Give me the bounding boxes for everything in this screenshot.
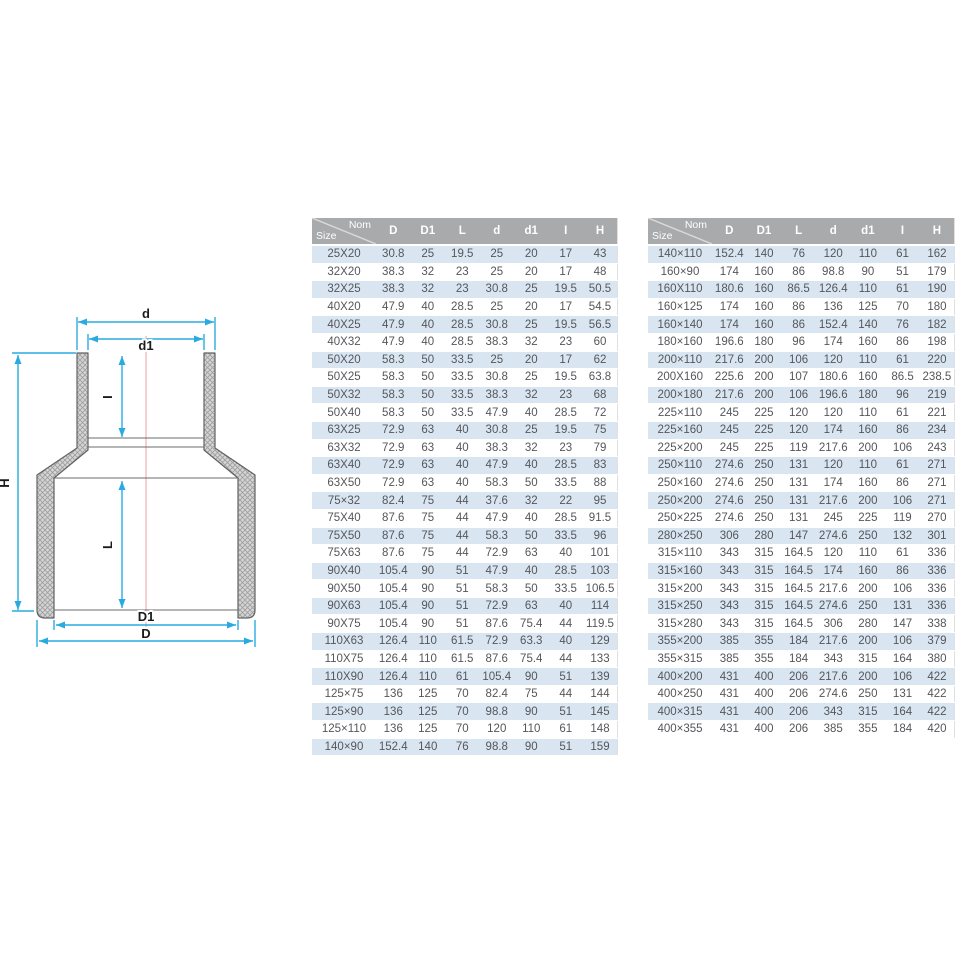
value-cell-I: 33.5 [549, 474, 584, 492]
value-cell-d1: 20 [514, 298, 549, 316]
value-cell-H: 159 [583, 738, 618, 756]
value-cell-H: 103 [583, 562, 618, 580]
size-cell: 200×110 [648, 351, 712, 369]
nom-header-label: Nom [685, 219, 707, 231]
value-cell-I: 19.5 [549, 281, 584, 299]
value-cell-L: 51 [445, 580, 480, 598]
value-cell-d1: 110 [851, 457, 886, 475]
size-cell: 250×225 [648, 509, 712, 527]
value-cell-H: 101 [583, 545, 618, 563]
value-cell-L: 184 [781, 633, 816, 651]
value-cell-d: 217.6 [816, 580, 851, 598]
table-row: 160X110180.616086.5126.411061190 [648, 281, 955, 299]
value-cell-D: 274.6 [712, 492, 747, 510]
value-cell-I: 70 [885, 298, 920, 316]
value-cell-L: 106 [781, 386, 816, 404]
value-cell-L: 164.5 [781, 580, 816, 598]
value-cell-D: 58.3 [376, 386, 411, 404]
table-row: 125×1101361257012011061148 [312, 721, 618, 739]
value-cell-H: 271 [920, 474, 955, 492]
value-cell-H: 379 [920, 633, 955, 651]
table-row: 400×200431400206217.6200106422 [648, 668, 955, 686]
label-l: L [100, 541, 115, 549]
table-row: 140×90152.41407698.89051159 [312, 738, 618, 756]
value-cell-D1: 50 [411, 386, 446, 404]
value-cell-D: 274.6 [712, 457, 747, 475]
size-cell: 315×200 [648, 580, 712, 598]
value-cell-L: 70 [445, 685, 480, 703]
value-cell-D: 38.3 [376, 281, 411, 299]
label-d1: d1 [138, 338, 153, 353]
value-cell-I: 86 [885, 562, 920, 580]
value-cell-d: 120 [816, 545, 851, 563]
value-cell-D: 343 [712, 580, 747, 598]
value-cell-L: 28.5 [445, 316, 480, 334]
value-cell-d1: 40 [514, 457, 549, 475]
column-header-I: I [549, 218, 584, 245]
value-cell-d: 196.6 [816, 386, 851, 404]
value-cell-D: 343 [712, 615, 747, 633]
size-cell: 400×250 [648, 685, 712, 703]
size-cell: 50X40 [312, 404, 376, 422]
value-cell-H: 219 [920, 386, 955, 404]
value-cell-L: 86 [781, 316, 816, 334]
value-cell-d1: 75.4 [514, 615, 549, 633]
value-cell-d: 217.6 [816, 668, 851, 686]
size-cell: 75×32 [312, 492, 376, 510]
table-row: 225×200245225119217.6200106243 [648, 439, 955, 457]
value-cell-D: 105.4 [376, 615, 411, 633]
value-cell-I: 61 [885, 351, 920, 369]
value-cell-H: 50.5 [583, 281, 618, 299]
value-cell-D: 343 [712, 562, 747, 580]
value-cell-L: 33.5 [445, 351, 480, 369]
value-cell-L: 131 [781, 457, 816, 475]
table-row: 200×180217.6200106196.618096219 [648, 386, 955, 404]
value-cell-L: 131 [781, 492, 816, 510]
value-cell-D: 82.4 [376, 492, 411, 510]
table-row: 50X2558.35033.530.82519.563.8 [312, 369, 618, 387]
value-cell-d: 120 [480, 721, 515, 739]
value-cell-L: 33.5 [445, 369, 480, 387]
value-cell-L: 131 [781, 509, 816, 527]
value-cell-D1: 75 [411, 492, 446, 510]
value-cell-H: 63.8 [583, 369, 618, 387]
value-cell-I: 44 [549, 650, 584, 668]
value-cell-I: 28.5 [549, 457, 584, 475]
value-cell-H: 220 [920, 351, 955, 369]
value-cell-H: 62 [583, 351, 618, 369]
table-row: 125×751361257082.47544144 [312, 685, 618, 703]
size-cell: 110X63 [312, 633, 376, 651]
value-cell-d1: 160 [851, 474, 886, 492]
value-cell-I: 106 [885, 580, 920, 598]
value-cell-H: 336 [920, 580, 955, 598]
value-cell-D1: 200 [747, 351, 782, 369]
value-cell-D1: 140 [747, 245, 782, 263]
table-row: 110X63126.411061.572.963.340129 [312, 633, 618, 651]
value-cell-L: 44 [445, 527, 480, 545]
value-cell-D1: 50 [411, 404, 446, 422]
value-cell-I: 40 [549, 633, 584, 651]
table-row: 50X4058.35033.547.94028.572 [312, 404, 618, 422]
size-cell: 225×160 [648, 421, 712, 439]
value-cell-D1: 200 [747, 386, 782, 404]
value-cell-I: 164 [885, 650, 920, 668]
value-cell-D1: 90 [411, 615, 446, 633]
table-row: 110X75126.411061.587.675.444133 [312, 650, 618, 668]
value-cell-d1: 25 [514, 421, 549, 439]
table-row: 90X50105.4905158.35033.5106.5 [312, 580, 618, 598]
size-cell: 50X32 [312, 386, 376, 404]
value-cell-d1: 90 [514, 668, 549, 686]
value-cell-H: 68 [583, 386, 618, 404]
value-cell-D: 126.4 [376, 650, 411, 668]
value-cell-D: 72.9 [376, 474, 411, 492]
column-header-D: D [712, 218, 747, 245]
size-cell: 400×200 [648, 668, 712, 686]
value-cell-d1: 32 [514, 333, 549, 351]
value-cell-d: 120 [816, 351, 851, 369]
value-cell-d: 174 [816, 421, 851, 439]
size-cell: 200X160 [648, 369, 712, 387]
value-cell-D1: 225 [747, 421, 782, 439]
value-cell-I: 131 [885, 685, 920, 703]
value-cell-D: 196.6 [712, 333, 747, 351]
table-row: 355×200385355184217.6200106379 [648, 633, 955, 651]
value-cell-D: 87.6 [376, 527, 411, 545]
value-cell-D: 126.4 [376, 633, 411, 651]
value-cell-D1: 400 [747, 668, 782, 686]
value-cell-d: 105.4 [480, 668, 515, 686]
value-cell-d1: 225 [851, 509, 886, 527]
value-cell-D: 152.4 [376, 738, 411, 756]
value-cell-I: 17 [549, 298, 584, 316]
value-cell-d: 120 [816, 457, 851, 475]
value-cell-D1: 75 [411, 509, 446, 527]
value-cell-I: 51 [549, 738, 584, 756]
value-cell-D: 47.9 [376, 316, 411, 334]
value-cell-D: 431 [712, 668, 747, 686]
size-cell: 32X25 [312, 281, 376, 299]
table-row: 400×355431400206385355184420 [648, 721, 955, 739]
table-row: 75X4087.6754447.94028.591.5 [312, 509, 618, 527]
value-cell-d1: 20 [514, 263, 549, 281]
size-cell: 90X75 [312, 615, 376, 633]
value-cell-D: 217.6 [712, 351, 747, 369]
value-cell-L: 51 [445, 597, 480, 615]
value-cell-d: 245 [816, 509, 851, 527]
table-row: 315×200343315164.5217.6200106336 [648, 580, 955, 598]
value-cell-I: 17 [549, 351, 584, 369]
value-cell-L: 61.5 [445, 650, 480, 668]
value-cell-d: 38.3 [480, 439, 515, 457]
value-cell-L: 120 [781, 421, 816, 439]
size-cell: 75X63 [312, 545, 376, 563]
value-cell-d: 174 [816, 474, 851, 492]
size-cell: 280×250 [648, 527, 712, 545]
value-cell-I: 184 [885, 721, 920, 739]
size-cell: 40X20 [312, 298, 376, 316]
size-cell: 63X50 [312, 474, 376, 492]
value-cell-H: 95 [583, 492, 618, 510]
value-cell-d: 274.6 [816, 685, 851, 703]
value-cell-H: 148 [583, 721, 618, 739]
value-cell-d1: 90 [514, 738, 549, 756]
value-cell-d: 274.6 [816, 527, 851, 545]
value-cell-H: 422 [920, 668, 955, 686]
value-cell-H: 54.5 [583, 298, 618, 316]
value-cell-H: 221 [920, 404, 955, 422]
value-cell-D1: 315 [747, 597, 782, 615]
value-cell-L: 206 [781, 668, 816, 686]
value-cell-D1: 90 [411, 562, 446, 580]
size-cell: 400×355 [648, 721, 712, 739]
value-cell-d: 47.9 [480, 457, 515, 475]
value-cell-H: 145 [583, 703, 618, 721]
value-cell-d1: 110 [851, 281, 886, 299]
value-cell-H: 60 [583, 333, 618, 351]
value-cell-D1: 75 [411, 545, 446, 563]
dimension-table-left: NomSizeDD1Ldd1IH 25X2030.82519.525201743… [312, 218, 618, 756]
value-cell-D1: 90 [411, 580, 446, 598]
value-cell-d1: 250 [851, 527, 886, 545]
value-cell-D1: 250 [747, 457, 782, 475]
value-cell-H: 422 [920, 703, 955, 721]
table-row: 355×315385355184343315164380 [648, 650, 955, 668]
value-cell-L: 70 [445, 703, 480, 721]
value-cell-d: 120 [816, 245, 851, 263]
value-cell-I: 131 [885, 597, 920, 615]
table-row: 32X2538.3322330.82519.550.5 [312, 281, 618, 299]
value-cell-D1: 40 [411, 298, 446, 316]
value-cell-d1: 75 [514, 685, 549, 703]
size-cell: 315×160 [648, 562, 712, 580]
value-cell-D: 152.4 [712, 245, 747, 263]
value-cell-D: 245 [712, 421, 747, 439]
value-cell-D1: 25 [411, 245, 446, 263]
table-row: 110X90126.411061105.49051139 [312, 668, 618, 686]
value-cell-H: 270 [920, 509, 955, 527]
value-cell-D1: 160 [747, 281, 782, 299]
value-cell-D: 343 [712, 597, 747, 615]
value-cell-d: 343 [816, 703, 851, 721]
value-cell-D: 58.3 [376, 351, 411, 369]
value-cell-H: 336 [920, 597, 955, 615]
value-cell-L: 44 [445, 492, 480, 510]
table-row: 75×3282.4754437.6322295 [312, 492, 618, 510]
value-cell-d1: 250 [851, 685, 886, 703]
value-cell-I: 106 [885, 492, 920, 510]
size-cell: 110X90 [312, 668, 376, 686]
value-cell-H: 75 [583, 421, 618, 439]
table-row: 315×250343315164.5274.6250131336 [648, 597, 955, 615]
value-cell-d1: 160 [851, 562, 886, 580]
value-cell-L: 86 [781, 263, 816, 281]
table-row: 125×901361257098.89051145 [312, 703, 618, 721]
value-cell-D1: 50 [411, 369, 446, 387]
size-cell: 63X32 [312, 439, 376, 457]
size-header-label: Size [652, 230, 672, 242]
value-cell-d1: 110 [514, 721, 549, 739]
column-header-d1: d1 [851, 218, 886, 245]
value-cell-H: 43 [583, 245, 618, 263]
value-cell-L: 70 [445, 721, 480, 739]
size-cell: 160×90 [648, 263, 712, 281]
value-cell-D1: 63 [411, 474, 446, 492]
table-row: 63X2572.9634030.82519.575 [312, 421, 618, 439]
table-row: 315×280343315164.5306280147338 [648, 615, 955, 633]
value-cell-D: 225.6 [712, 369, 747, 387]
value-cell-H: 301 [920, 527, 955, 545]
value-cell-I: 33.5 [549, 580, 584, 598]
size-cell: 40X32 [312, 333, 376, 351]
value-cell-D1: 180 [747, 333, 782, 351]
size-cell: 90X50 [312, 580, 376, 598]
value-cell-D1: 140 [411, 738, 446, 756]
value-cell-D: 217.6 [712, 386, 747, 404]
value-cell-D: 274.6 [712, 509, 747, 527]
value-cell-I: 106 [885, 633, 920, 651]
value-cell-d1: 110 [851, 545, 886, 563]
value-cell-D: 47.9 [376, 298, 411, 316]
value-cell-L: 51 [445, 615, 480, 633]
size-cell: 315×250 [648, 597, 712, 615]
value-cell-D1: 32 [411, 281, 446, 299]
value-cell-d1: 63 [514, 597, 549, 615]
value-cell-D: 245 [712, 439, 747, 457]
table-row: 160×1251741608613612570180 [648, 298, 955, 316]
value-cell-I: 51 [885, 263, 920, 281]
value-cell-I: 28.5 [549, 509, 584, 527]
reducer-cross-section-diagram: d d1 I L H D1 D [0, 300, 300, 670]
value-cell-D1: 50 [411, 351, 446, 369]
table-row: 40X2047.94028.525201754.5 [312, 298, 618, 316]
value-cell-d1: 40 [514, 509, 549, 527]
value-cell-d1: 50 [514, 580, 549, 598]
value-cell-d1: 200 [851, 668, 886, 686]
value-cell-d: 47.9 [480, 509, 515, 527]
value-cell-L: 40 [445, 421, 480, 439]
value-cell-D1: 125 [411, 703, 446, 721]
value-cell-D: 431 [712, 721, 747, 739]
column-header-H: H [920, 218, 955, 245]
value-cell-D: 105.4 [376, 580, 411, 598]
value-cell-D: 30.8 [376, 245, 411, 263]
value-cell-D1: 63 [411, 457, 446, 475]
value-cell-d1: 110 [851, 245, 886, 263]
table-row: 315×110343315164.512011061336 [648, 545, 955, 563]
value-cell-I: 61 [885, 245, 920, 263]
value-cell-L: 44 [445, 545, 480, 563]
value-cell-D1: 225 [747, 404, 782, 422]
value-cell-D: 385 [712, 650, 747, 668]
value-cell-D1: 63 [411, 439, 446, 457]
value-cell-d: 25 [480, 245, 515, 263]
table-row: 140×110152.41407612011061162 [648, 245, 955, 263]
value-cell-I: 96 [885, 386, 920, 404]
value-cell-I: 22 [549, 492, 584, 510]
value-cell-H: 380 [920, 650, 955, 668]
value-cell-D1: 63 [411, 421, 446, 439]
value-cell-H: 162 [920, 245, 955, 263]
size-cell: 250×160 [648, 474, 712, 492]
size-cell: 90X40 [312, 562, 376, 580]
value-cell-D: 58.3 [376, 369, 411, 387]
value-cell-D1: 160 [747, 316, 782, 334]
size-cell: 140×90 [312, 738, 376, 756]
value-cell-d1: 63.3 [514, 633, 549, 651]
value-cell-d1: 63 [514, 545, 549, 563]
value-cell-D: 87.6 [376, 545, 411, 563]
value-cell-H: 129 [583, 633, 618, 651]
value-cell-D1: 315 [747, 580, 782, 598]
value-cell-D: 105.4 [376, 597, 411, 615]
value-cell-d1: 32 [514, 439, 549, 457]
value-cell-I: 61 [885, 281, 920, 299]
value-cell-d1: 200 [851, 439, 886, 457]
value-cell-H: 133 [583, 650, 618, 668]
value-cell-L: 96 [781, 333, 816, 351]
value-cell-d: 47.9 [480, 562, 515, 580]
value-cell-L: 33.5 [445, 404, 480, 422]
size-cell: 160×125 [648, 298, 712, 316]
value-cell-d1: 90 [851, 263, 886, 281]
value-cell-d1: 280 [851, 615, 886, 633]
value-cell-d: 25 [480, 351, 515, 369]
size-cell: 40X25 [312, 316, 376, 334]
value-cell-D: 431 [712, 685, 747, 703]
value-cell-D1: 110 [411, 633, 446, 651]
value-cell-D: 87.6 [376, 509, 411, 527]
size-cell: 400×315 [648, 703, 712, 721]
size-cell: 32X20 [312, 263, 376, 281]
value-cell-H: 198 [920, 333, 955, 351]
column-header-d: d [480, 218, 515, 245]
label-d: d [142, 306, 150, 321]
value-cell-I: 61 [885, 545, 920, 563]
value-cell-d: 82.4 [480, 685, 515, 703]
value-cell-D1: 355 [747, 650, 782, 668]
value-cell-L: 119 [781, 439, 816, 457]
value-cell-d: 58.3 [480, 580, 515, 598]
table-row: 63X3272.9634038.3322379 [312, 439, 618, 457]
table-row: 250×200274.6250131217.6200106271 [648, 492, 955, 510]
value-cell-L: 107 [781, 369, 816, 387]
value-cell-L: 86 [781, 298, 816, 316]
value-cell-L: 61.5 [445, 633, 480, 651]
table-row: 75X5087.6754458.35033.596 [312, 527, 618, 545]
value-cell-D: 385 [712, 633, 747, 651]
value-cell-d1: 50 [514, 527, 549, 545]
size-cell: 25X20 [312, 245, 376, 263]
value-cell-D1: 125 [411, 685, 446, 703]
value-cell-d: 274.6 [816, 597, 851, 615]
value-cell-d: 30.8 [480, 281, 515, 299]
size-cell: 75X50 [312, 527, 376, 545]
value-cell-D1: 315 [747, 545, 782, 563]
value-cell-D: 174 [712, 316, 747, 334]
value-cell-D1: 125 [411, 721, 446, 739]
value-cell-L: 61 [445, 668, 480, 686]
value-cell-d: 98.8 [816, 263, 851, 281]
size-cell: 50X20 [312, 351, 376, 369]
value-cell-L: 28.5 [445, 298, 480, 316]
table-row: 160×901741608698.89051179 [648, 263, 955, 281]
value-cell-d: 180.6 [816, 369, 851, 387]
table-row: 160×14017416086152.414076182 [648, 316, 955, 334]
value-cell-I: 19.5 [549, 421, 584, 439]
